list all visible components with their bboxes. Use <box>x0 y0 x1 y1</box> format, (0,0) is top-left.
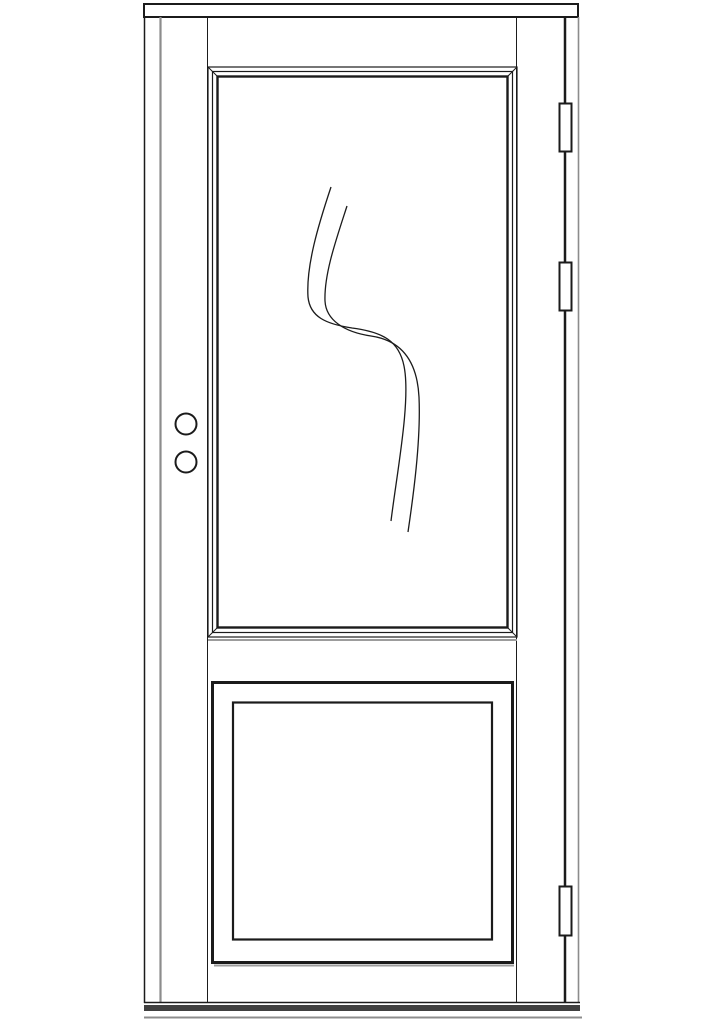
glass-molding-middle <box>213 72 513 633</box>
hinge-middle <box>560 263 572 311</box>
bottom-panel-outer <box>213 683 513 963</box>
door-elevation-drawing <box>0 0 724 1024</box>
glass-ornament-curve-1 <box>308 187 406 521</box>
door-drawing-svg <box>0 0 724 1024</box>
hinge-top <box>560 104 572 152</box>
hinge-bottom <box>560 887 572 936</box>
glass-molding-inner <box>218 77 508 628</box>
deadbolt-bore-lower <box>176 452 197 473</box>
threshold-band <box>144 1005 580 1011</box>
glass-molding-outer <box>208 67 517 637</box>
bottom-panel-inner <box>233 703 492 940</box>
frame-header <box>144 4 578 17</box>
handle-bore-upper <box>176 414 197 435</box>
